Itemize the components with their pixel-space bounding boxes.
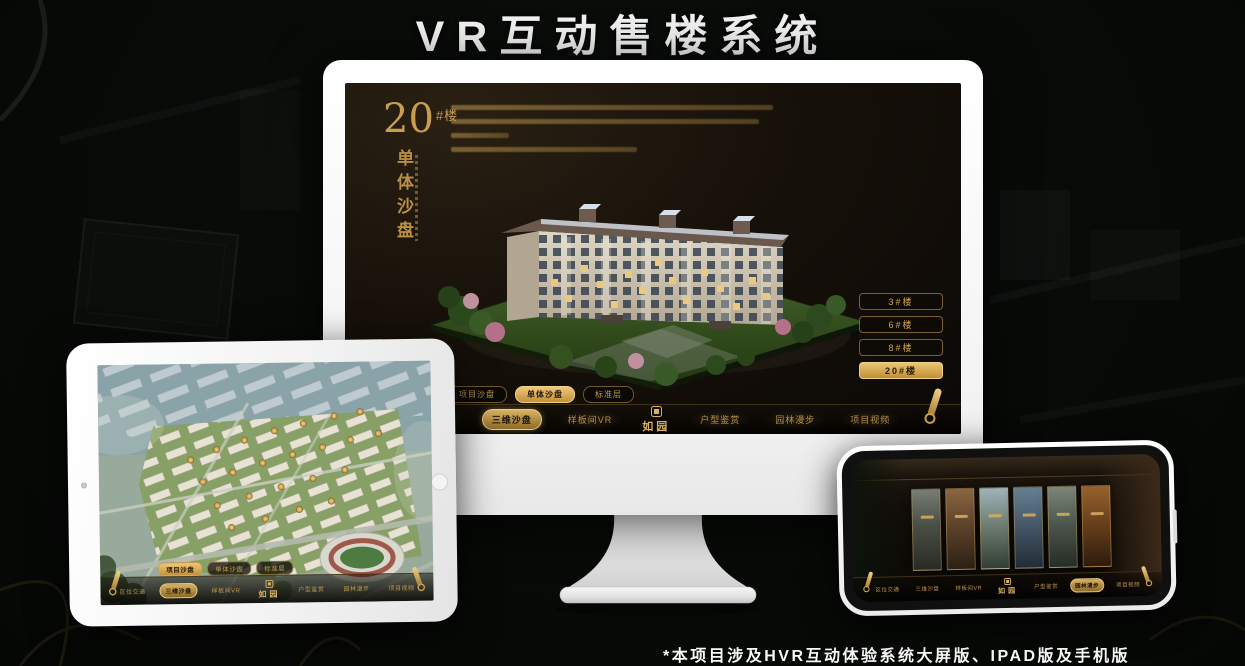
nav-item-3d-sandtable[interactable]: 三维沙盘 [159, 583, 197, 599]
scene-card[interactable] [979, 487, 1010, 570]
scene-card[interactable] [1013, 486, 1044, 569]
nav-item-floorplan[interactable]: 户型鉴赏 [293, 582, 329, 596]
floor-button-6[interactable]: 6#楼 [859, 316, 943, 333]
nav-item-model-room-vr[interactable]: 样板间VR [206, 583, 245, 597]
tablet-camera [81, 482, 87, 488]
brand-logo-text: 如园 [998, 586, 1018, 596]
tablet-device: 项目沙盘 单体沙盘 标准层 区位交通 三维沙盘 样板间VR 如园 户型鉴赏 园林… [66, 338, 458, 626]
floor-button-20[interactable]: 20#楼 [859, 362, 943, 379]
phone-bezel: 区位交通 三维沙盘 样板间VR 如园 户型鉴赏 园林漫步 项目视频 [841, 445, 1171, 612]
seal-icon [1004, 578, 1011, 585]
floor-selector: 3#楼 6#楼 8#楼 20#楼 [859, 293, 943, 379]
card-label-bar [954, 515, 967, 518]
phone-side-button [1173, 509, 1178, 543]
text-line [451, 105, 773, 110]
tab-single-sandtable[interactable]: 单体沙盘 [515, 386, 575, 403]
desktop-sub-tabs: 项目沙盘 单体沙盘 标准层 [447, 386, 634, 403]
tab-standard-floor[interactable]: 标准层 [256, 561, 293, 576]
scroll-menu-icon[interactable] [106, 568, 124, 603]
card-label-bar [1090, 512, 1103, 515]
nav-item-garden-walk[interactable]: 园林漫步 [338, 581, 374, 595]
card-label-bar [988, 514, 1001, 517]
nav-item-floorplan[interactable]: 户型鉴赏 [1030, 580, 1062, 593]
card-label-bar [1022, 513, 1035, 516]
tab-standard-floor[interactable]: 标准层 [583, 386, 634, 403]
nav-item-garden-walk[interactable]: 园林漫步 [1070, 578, 1104, 593]
nav-item-floorplan[interactable]: 户型鉴赏 [691, 410, 749, 429]
scene-card[interactable] [1047, 486, 1078, 569]
scene-gallery [911, 485, 1112, 571]
nav-item-model-room-vr[interactable]: 样板间VR [951, 581, 986, 594]
phone-screen: 区位交通 三维沙盘 样板间VR 如园 户型鉴赏 园林漫步 项目视频 [851, 454, 1163, 602]
seal-icon [651, 406, 662, 417]
monitor-stand [548, 513, 768, 618]
building-3d-render [411, 129, 881, 389]
tablet-home-button [431, 473, 448, 490]
scene-card[interactable] [911, 488, 942, 571]
nav-item-3d-sandtable[interactable]: 三维沙盘 [482, 409, 542, 430]
scroll-menu-icon[interactable] [1139, 563, 1155, 594]
tablet-screen: 项目沙盘 单体沙盘 标准层 区位交通 三维沙盘 样板间VR 如园 户型鉴赏 园林… [97, 361, 433, 606]
brand-logo: 如园 [998, 578, 1018, 596]
tablet-bottom-nav: 区位交通 三维沙盘 样板间VR 如园 户型鉴赏 园林漫步 项目视频 [100, 573, 433, 606]
nav-item-garden-walk[interactable]: 园林漫步 [766, 410, 824, 429]
nav-item-project-video[interactable]: 项目视频 [841, 410, 899, 429]
seal-icon [265, 579, 273, 587]
brand-logo-text: 如园 [642, 418, 670, 434]
scroll-menu-icon[interactable] [409, 564, 427, 599]
brand-logo: 如园 [642, 406, 670, 434]
nav-item-3d-sandtable[interactable]: 三维沙盘 [911, 582, 943, 595]
card-label-bar [920, 516, 933, 519]
scroll-menu-icon[interactable] [861, 569, 877, 600]
background-plaque [73, 218, 239, 340]
scene-card[interactable] [1081, 485, 1112, 568]
brand-logo-text: 如园 [258, 588, 280, 599]
phone-bottom-nav: 区位交通 三维沙盘 样板间VR 如园 户型鉴赏 园林漫步 项目视频 [853, 571, 1162, 602]
text-line [451, 119, 759, 124]
footnote: *本项目涉及HVR互动体验系统大屏版、IPAD版及手机版 [663, 642, 1130, 666]
poster-stage: VR互动售楼系统 20 #楼 单体沙盘 [0, 0, 1245, 666]
nav-item-model-room-vr[interactable]: 样板间VR [559, 410, 622, 429]
scroll-menu-icon[interactable] [921, 386, 947, 431]
floor-button-8[interactable]: 8#楼 [859, 339, 943, 356]
page-title: VR互动售楼系统 [0, 2, 1245, 64]
scene-card[interactable] [945, 488, 976, 571]
floor-button-3[interactable]: 3#楼 [859, 293, 943, 310]
card-label-bar [1056, 513, 1069, 516]
brand-logo: 如园 [258, 579, 280, 599]
tab-project-sandtable[interactable]: 项目沙盘 [447, 386, 507, 403]
tab-single-sandtable[interactable]: 单体沙盘 [207, 561, 251, 576]
phone-device: 区位交通 三维沙盘 样板间VR 如园 户型鉴赏 园林漫步 项目视频 [836, 439, 1176, 616]
tab-project-sandtable[interactable]: 项目沙盘 [158, 562, 202, 577]
